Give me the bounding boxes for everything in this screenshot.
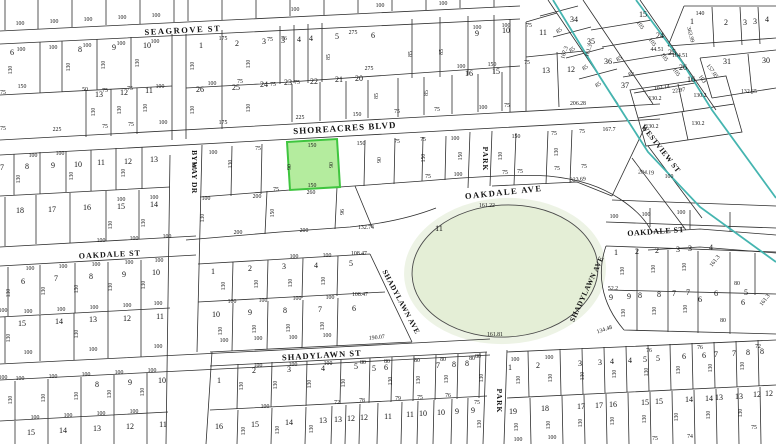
dimension-label: 260 [307, 190, 316, 196]
dimension-label: 161.81 [487, 332, 503, 338]
lot-number: 4 [709, 243, 713, 252]
lot-number: 6 [682, 352, 686, 361]
lot-number: 24 [260, 80, 268, 89]
dimension-label: 100 [326, 295, 335, 301]
lot-number: 9 [51, 161, 55, 170]
lot-number: 9 [128, 378, 132, 387]
lot-number: 10 [158, 376, 166, 385]
lot-number: 37 [621, 81, 629, 90]
lot-number: 14 [150, 200, 158, 209]
lot-number: 11 [145, 86, 153, 95]
dimension-label: 130 [286, 324, 292, 333]
lot-number: 2 [655, 246, 659, 255]
street-label: SHOREACRES BLVD [293, 120, 397, 136]
dimension-label: 100 [163, 234, 172, 240]
lot-number: 16 [609, 400, 617, 409]
dimension-label: 100 [49, 374, 58, 380]
lot-number: 14 [285, 418, 293, 427]
dimension-label: 100 [24, 309, 33, 315]
dimension-label: 130 [320, 322, 326, 331]
dimension-label: 100 [97, 238, 106, 244]
lot-number: 2 [536, 361, 540, 370]
lot-number: 3 [676, 245, 680, 254]
dimension-label: 130 [676, 366, 682, 375]
lot-number: 10 [74, 160, 82, 169]
dimension-label: 130 [74, 285, 80, 294]
lot-number: 4 [610, 357, 614, 366]
dimension-label: 130 [610, 417, 616, 426]
dimension-label: 85 [408, 51, 414, 57]
lot-number: 11 [159, 420, 167, 429]
dimension-label: 130 [252, 325, 258, 334]
dimension-label: 100 [289, 335, 298, 341]
dimension-label: 130 [91, 108, 97, 117]
lot-number: 34 [570, 15, 578, 24]
dimension-label: 100 [150, 195, 159, 201]
lot-number: 13 [715, 393, 723, 402]
lot-number: 16 [687, 75, 695, 84]
dimension-label: 80 [440, 357, 446, 363]
dimension-label: 150 [353, 112, 362, 118]
dimension-label: 75 [551, 131, 557, 137]
lot-number: 1 [217, 376, 221, 385]
dimension-label: 130 [140, 388, 146, 397]
dimension-label: 76 [445, 393, 451, 399]
dimension-label: 75 [417, 395, 423, 401]
dimension-label: 75 [425, 174, 431, 180]
lot-number: 15 [18, 319, 26, 328]
lot-number: 11 [406, 410, 414, 419]
dimension-label: 167.7 [602, 127, 615, 133]
dimension-label: 80 [475, 354, 481, 360]
dimension-label: 130 [620, 267, 626, 276]
dimension-label: 85 [581, 64, 589, 72]
dimension-label: 130 [706, 411, 712, 420]
dimension-label: 130 [498, 152, 504, 161]
lot-number: 16 [215, 422, 223, 431]
dimension-label: 150 [512, 134, 521, 140]
dimension-label: 140 [696, 11, 705, 17]
dimension-label: 175 [219, 120, 228, 126]
dimension-label: 100 [548, 435, 557, 441]
dimension-label: 90 [287, 164, 293, 170]
dimension-label: 130 [388, 377, 394, 386]
lot-number: 7 [732, 349, 736, 358]
dimension-label: 130 [674, 413, 680, 422]
dimension-label: 100 [89, 347, 98, 353]
lot-number: 8 [638, 291, 642, 300]
dimension-label: 75 [517, 169, 523, 175]
dimension-label: 80 [360, 360, 366, 366]
dimension-label: 130 [273, 381, 279, 390]
dimension-label: 150 [488, 62, 497, 68]
dimension-label: 130 [683, 305, 689, 314]
lot-number: 19 [509, 407, 517, 416]
dimension-label: 130 [546, 421, 552, 430]
dimension-label: 130 [141, 219, 147, 228]
lot-number: 7 [686, 288, 690, 297]
lot-number: 8 [78, 45, 82, 54]
dimension-label: 130 [554, 148, 560, 157]
dimension-label: 132.65 [741, 89, 757, 95]
dimension-label: 100 [123, 303, 132, 309]
dimension-label: 190.07 [369, 334, 386, 341]
lot-number: 4 [628, 356, 632, 365]
dimension-label: 100 [26, 266, 35, 272]
lot-number: 11 [384, 412, 392, 421]
dimension-label: 100 [84, 17, 93, 23]
dimension-label: 130 [642, 415, 648, 424]
dimension-label: 130 [228, 160, 234, 169]
dimension-label: 150 [270, 209, 276, 218]
dimension-label: 100 [125, 260, 134, 266]
lot-number: 15 [117, 202, 125, 211]
dimension-label: 150 [357, 141, 366, 147]
lot-number: 9 [122, 270, 126, 279]
lot-number: 7 [672, 289, 676, 298]
dimension-label: 130 [16, 175, 22, 184]
lot-number: 14 [705, 394, 713, 403]
dimension-label: 150 [308, 143, 317, 149]
lot-number: 8 [657, 290, 661, 299]
dimension-label: 130 [321, 277, 327, 286]
dimension-label: 130 [221, 282, 227, 291]
dimension-label: 75 [394, 139, 400, 145]
dimension-label: 90 [329, 162, 335, 168]
lot-number: 6 [741, 298, 745, 307]
dimension-label: 52.2 [608, 286, 618, 292]
dimension-label: 275 [365, 66, 374, 72]
lot-number: 4 [297, 35, 301, 44]
dimension-label: 150 [458, 152, 464, 161]
dimension-label: 100 [154, 344, 163, 350]
dimension-label: 80 [414, 358, 420, 364]
lot-number: 17 [595, 401, 603, 410]
dimension-label: 100 [152, 13, 161, 19]
lot-number: 12 [765, 389, 773, 398]
dimension-label: 100 [118, 15, 127, 21]
dimension-label: 130 [341, 379, 347, 388]
dimension-label: 130 [307, 380, 313, 389]
dimension-label: 130 [8, 396, 14, 405]
lot-number: 15 [639, 10, 647, 19]
lot-number: 1 [199, 41, 203, 50]
dimension-label: 100 [261, 404, 270, 410]
lot-number: 4 [314, 261, 318, 270]
lot-number: 23 [284, 78, 292, 87]
dimension-label: 100 [514, 437, 523, 443]
street-label: OAKDALE ST [627, 225, 685, 238]
dimension-label: 100 [454, 172, 463, 178]
lot-number: 14 [55, 317, 63, 326]
lot-number: 6 [10, 48, 14, 57]
dimension-label: 130 [444, 375, 450, 384]
dimension-label: 108.47 [351, 251, 367, 257]
dimension-label: 78 [359, 398, 365, 404]
dimension-label: 100 [439, 1, 448, 7]
dimension-label: 130 [141, 281, 147, 290]
dimension-label: 75 [294, 80, 300, 86]
lot-number: 5 [744, 288, 748, 297]
dimension-label: 130 [41, 394, 47, 403]
dimension-label: 100 [130, 236, 139, 242]
dimension-label: 130 [108, 221, 114, 230]
dimension-label: 100 [202, 196, 211, 202]
dimension-label: 100 [254, 336, 263, 342]
dimension-label: 100 [117, 197, 126, 203]
dimension-label: 100 [56, 151, 65, 157]
dimension-label: 130 [200, 214, 206, 223]
dimension-label: 75 [267, 37, 273, 43]
dimension-label: 100 [290, 254, 299, 260]
lot-number: 13 [319, 416, 327, 425]
lot-number: 26 [196, 85, 204, 94]
dimension-label: 100 [148, 368, 157, 374]
dimension-label: 75 [502, 170, 508, 176]
dimension-label: 130 [740, 362, 746, 371]
dimension-label: 200 [253, 194, 262, 200]
dimension-label: 130 [117, 106, 123, 115]
lot-number: 10 [212, 310, 220, 319]
lot-number: 6 [698, 295, 702, 304]
dimension-label: 130 [8, 66, 14, 75]
lot-number: 13 [735, 392, 743, 401]
lot-number: 15 [655, 397, 663, 406]
dimension-label: 130 [288, 279, 294, 288]
dimension-label: 130 [514, 423, 520, 432]
map-canvas[interactable]: SEAGROVE STSHOREACRES BLVDBYWAY DROAKDAL… [0, 0, 776, 444]
dimension-label: 275 [349, 30, 358, 36]
lot-number: 13 [542, 66, 550, 75]
lot-number: 18 [541, 404, 549, 413]
lot-number: 4 [309, 34, 313, 43]
lot-number: 4 [765, 15, 769, 24]
dimension-label: 157.05 [705, 63, 719, 80]
dimension-label: 130 [708, 364, 714, 373]
dimension-label: 100 [451, 136, 460, 142]
dimension-label: 134.48 [596, 325, 613, 336]
lot-number: 3 [688, 244, 692, 253]
lot-number: 9 [471, 406, 475, 415]
dimension-label: 100 [31, 415, 40, 421]
dimension-label: 130 [143, 104, 149, 113]
dimension-label: 75 [554, 166, 560, 172]
lot-number: 5 [335, 32, 339, 41]
lot-number: 2 [235, 39, 239, 48]
dimension-label: 130 [246, 60, 252, 69]
dimension-label: 100 [511, 357, 520, 363]
street-label: SEAGROVE ST [144, 23, 221, 37]
lot-number: 16 [83, 203, 91, 212]
parcel-map[interactable]: SEAGROVE STSHOREACRES BLVDBYWAY DROAKDAL… [0, 0, 776, 444]
dimension-label: 130 [275, 426, 281, 435]
lot-number: 12 [126, 422, 134, 431]
dimension-label: 130 [218, 327, 224, 336]
dimension-label: 100 [154, 301, 163, 307]
dimension-label: 100 [209, 150, 218, 156]
dimension-label: 130 [644, 368, 650, 377]
dimension-label: 44.51 [650, 47, 663, 53]
lot-number: 11 [97, 158, 105, 167]
dimension-label: 100 [376, 3, 385, 9]
dimension-label: 90 [377, 157, 383, 163]
dimension-label: 75 [127, 86, 133, 92]
lot-number: 6 [702, 351, 706, 360]
dimension-label: 75 [504, 103, 510, 109]
dimension-label: 132.74 [358, 225, 374, 231]
dimension-label: 85 [326, 54, 332, 60]
dimension-label: 100 [59, 264, 68, 270]
lot-number: 9 [609, 293, 613, 302]
lot-number: 5 [349, 259, 353, 268]
dimension-label: 100 [64, 413, 73, 419]
dimension-label: 100 [291, 7, 300, 13]
lot-number: 13 [93, 424, 101, 433]
dimension-label: 100 [0, 375, 7, 381]
dimension-label: 75 [237, 79, 243, 85]
dimension-label: 79 [395, 396, 401, 402]
lot-number: 3 [598, 358, 602, 367]
dimension-label: 130.2 [691, 121, 704, 127]
dimension-label: 130 [41, 287, 47, 296]
lot-number: 6 [371, 31, 375, 40]
lot-number: 9 [112, 43, 116, 52]
lot-number: 1 [690, 17, 694, 26]
dimension-label: 100 [293, 296, 302, 302]
lot-number: 10 [437, 408, 445, 417]
dimension-label: 75 [420, 137, 426, 143]
dimension-label: 100 [642, 212, 651, 218]
lot-number: 17 [577, 402, 585, 411]
dimension-label: 100 [156, 84, 165, 90]
dimension-label: 130.2 [645, 124, 658, 130]
dimension-label: 130 [612, 370, 618, 379]
dimension-label: 100 [479, 105, 488, 111]
lot-number: 15 [251, 420, 259, 429]
dimension-label: 100 [254, 363, 263, 369]
dimension-label: 75 [579, 129, 585, 135]
dimension-label: 76 [697, 345, 703, 351]
lot-number: 3 [262, 37, 266, 46]
lot-number: 7 [714, 350, 718, 359]
dimension-label: 85 [439, 49, 445, 55]
dimension-label: 175 [219, 36, 228, 42]
dimension-label: 130 [107, 390, 113, 399]
dimension-label: 130 [108, 283, 114, 292]
dimension-label: 74 [687, 434, 693, 440]
dimension-label: 161.3 [759, 293, 772, 307]
dimension-label: 130 [738, 409, 744, 418]
dimension-label: 150 [308, 183, 317, 189]
dimension-label: 130.2 [693, 93, 706, 99]
dimension-label: 75 [474, 400, 480, 406]
dimension-label: 130 [239, 382, 245, 391]
lot-number: 10 [419, 409, 427, 418]
dimension-label: 225 [53, 127, 62, 133]
dimension-label: 75 [652, 436, 658, 442]
lot-number: 12 [567, 65, 575, 74]
dimension-label: 100 [323, 253, 332, 259]
dimension-label: 130 [66, 63, 72, 72]
dimension-label: 130 [241, 427, 247, 436]
dimension-label: 75 [270, 82, 276, 88]
lot-number: 36 [604, 57, 612, 66]
dimension-label: 100 [289, 362, 298, 368]
dimension-label: 100 [50, 19, 59, 25]
dimension-label: 100 [97, 411, 106, 417]
lot-number: 31 [723, 57, 731, 66]
dimension-label: 161.22 [479, 203, 495, 209]
lot-number: 11 [539, 28, 547, 37]
lot-number: 7 [54, 274, 58, 283]
lot-number: 21 [335, 75, 343, 84]
dimension-label: 130 [516, 376, 522, 385]
dimension-label: 80 [734, 281, 740, 287]
lot-number: 6 [352, 304, 356, 313]
lot-number: 11 [435, 224, 443, 233]
lot-number: 5 [372, 364, 376, 373]
dimension-label: 130 [121, 169, 127, 178]
lot-number: 12 [123, 314, 131, 323]
dimension-label: 75 [102, 88, 108, 94]
dimension-label: 72 [334, 400, 340, 406]
lot-number: 8 [25, 162, 29, 171]
dimension-label: 75 [581, 164, 587, 170]
dimension-label: 130.2 [648, 96, 661, 102]
dimension-label: 130 [190, 106, 196, 115]
lot-number: 11 [156, 312, 164, 321]
dimension-label: 100 [16, 376, 25, 382]
lot-number: 3 [753, 17, 757, 26]
dimension-label: 100 [16, 21, 25, 27]
dimension-label: 75 [526, 23, 532, 29]
dimension-label: 100 [502, 23, 511, 29]
dimension-label: 200 [300, 228, 309, 234]
dimension-label: 100 [545, 355, 554, 361]
dimension-label: 130 [6, 289, 12, 298]
lot-number: 6 [714, 289, 718, 298]
dimension-label: 161.3 [709, 254, 722, 268]
dimension-label: 100 [323, 333, 332, 339]
lot-number: 3 [282, 262, 286, 271]
lot-number: 7 [0, 163, 4, 172]
dimension-label: 75 [0, 126, 6, 132]
dimension-label: 80 [720, 318, 726, 324]
street-label: PARK [481, 147, 490, 172]
lot-number: 9 [248, 308, 252, 317]
dimension-label: 76 [281, 36, 287, 42]
lot-number: 9 [627, 292, 631, 301]
dimension-label: 75 [751, 425, 757, 431]
dimension-label: 100 [677, 210, 686, 216]
lot-number: 1 [211, 267, 215, 276]
dimension-label: 75 [0, 90, 6, 96]
dimension-label: 85 [555, 27, 563, 35]
dimension-label: 130 [651, 265, 657, 274]
lot-number: 2 [248, 264, 252, 273]
dimension-label: 206.28 [570, 101, 586, 107]
dimension-label: 100 [259, 298, 268, 304]
dimension-label: 130 [74, 330, 80, 339]
lot-number: 12 [360, 413, 368, 422]
dimension-label: 75 [394, 109, 400, 115]
dimension-label: 130 [652, 307, 658, 316]
dimension-label: 75 [128, 122, 134, 128]
lot-number: 17 [48, 205, 56, 214]
dimension-label: 100 [159, 120, 168, 126]
dimension-label: 75 [255, 146, 261, 152]
dimension-label: 100 [228, 299, 237, 305]
